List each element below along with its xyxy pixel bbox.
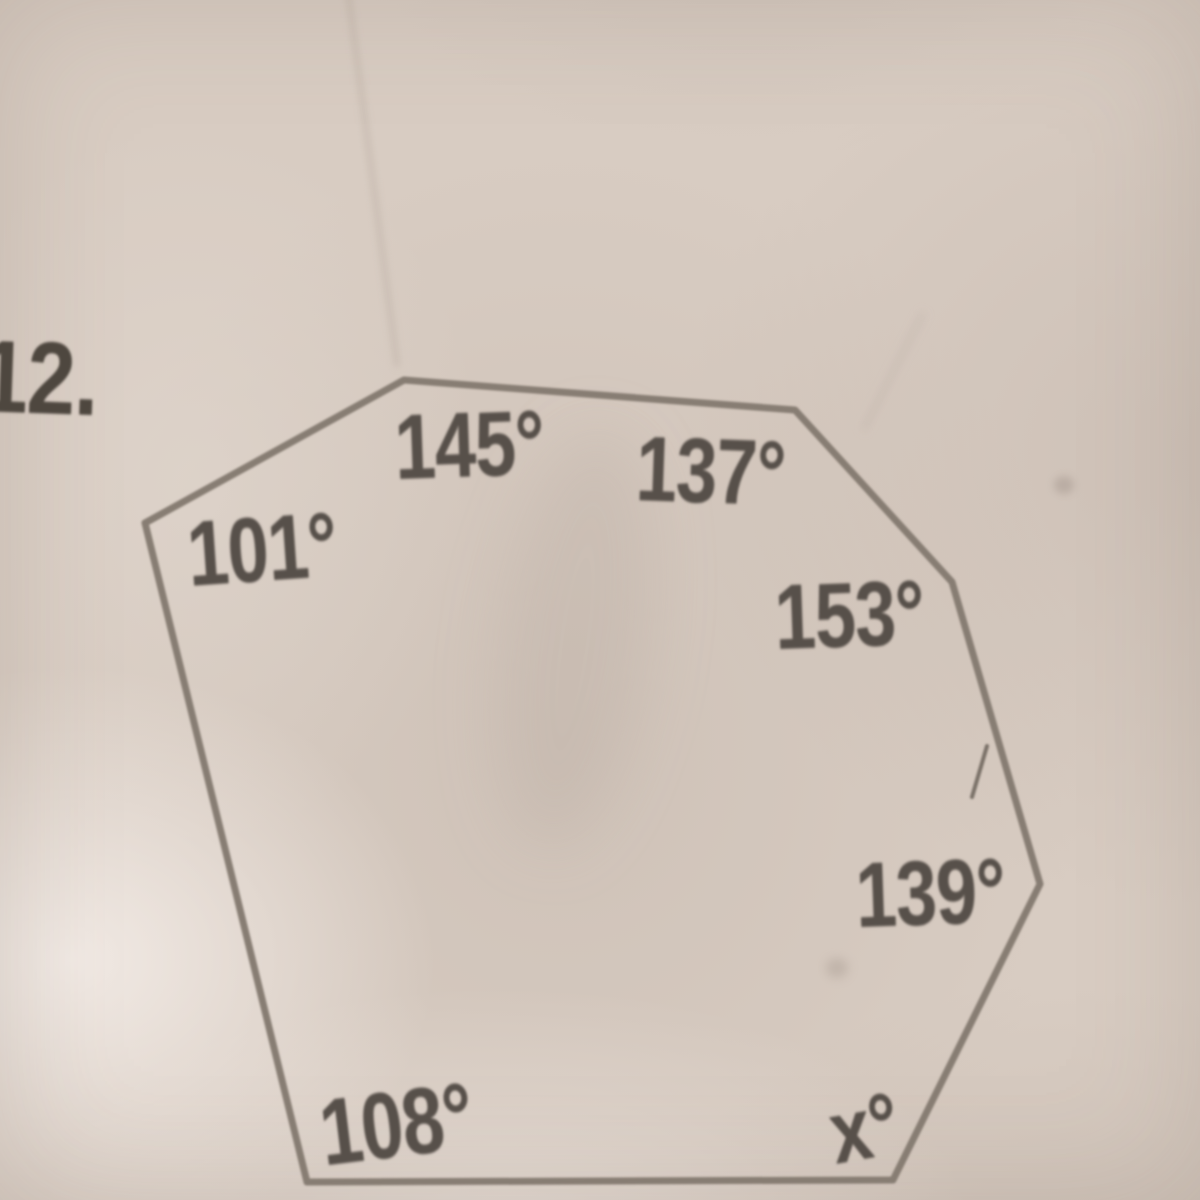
angle-label-108: 108° [314, 1061, 478, 1187]
polygon-diagram [0, 0, 1200, 1200]
pencil-mark [972, 746, 987, 797]
angle-label-145: 145° [393, 391, 546, 501]
angle-label-153: 153° [773, 561, 926, 671]
angle-label-139: 139° [854, 839, 1007, 949]
angle-label-101: 101° [184, 493, 340, 608]
angle-label-137: 137° [634, 417, 787, 527]
problem-number: 12. [0, 318, 100, 439]
